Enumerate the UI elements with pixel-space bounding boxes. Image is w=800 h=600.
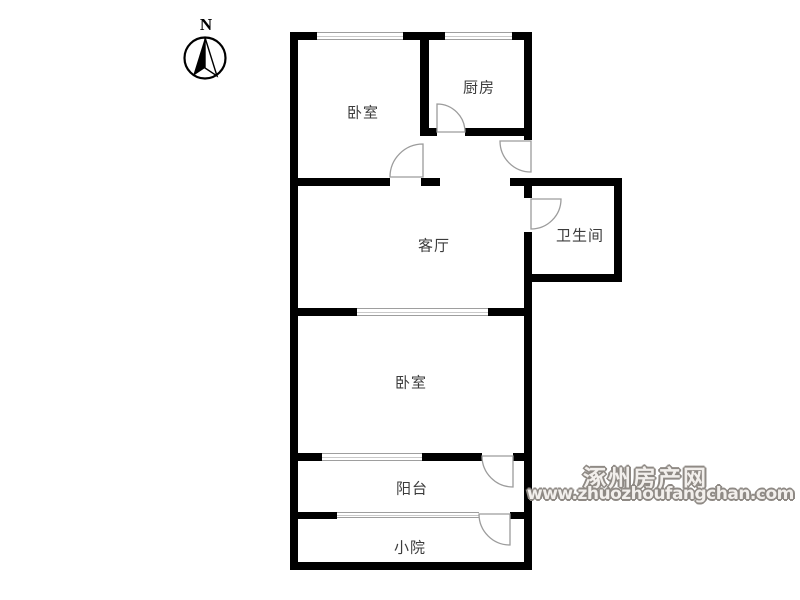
room-label-bedroom-north: 卧室: [347, 102, 379, 123]
room-label-bedroom-south: 卧室: [395, 372, 427, 393]
room-label-courtyard: 小院: [394, 537, 426, 558]
door-arc-entry: [500, 141, 531, 172]
door-arc-kitchen: [437, 104, 465, 132]
door-arc-courtyard: [479, 514, 510, 545]
room-label-bathroom: 卫生间: [556, 225, 604, 246]
room-label-balcony: 阳台: [396, 478, 428, 499]
watermark-site-url: www.zhuozhoufangchan.com: [527, 484, 794, 504]
room-label-kitchen: 厨房: [463, 77, 495, 98]
door-arcs-layer: [0, 0, 800, 600]
floor-plan-canvas: N 卧室 厨房 客厅 卫生间: [0, 0, 800, 600]
door-arc-bedroom-north: [390, 144, 423, 177]
room-label-living-room: 客厅: [418, 235, 450, 256]
door-arc-balcony: [482, 456, 513, 487]
